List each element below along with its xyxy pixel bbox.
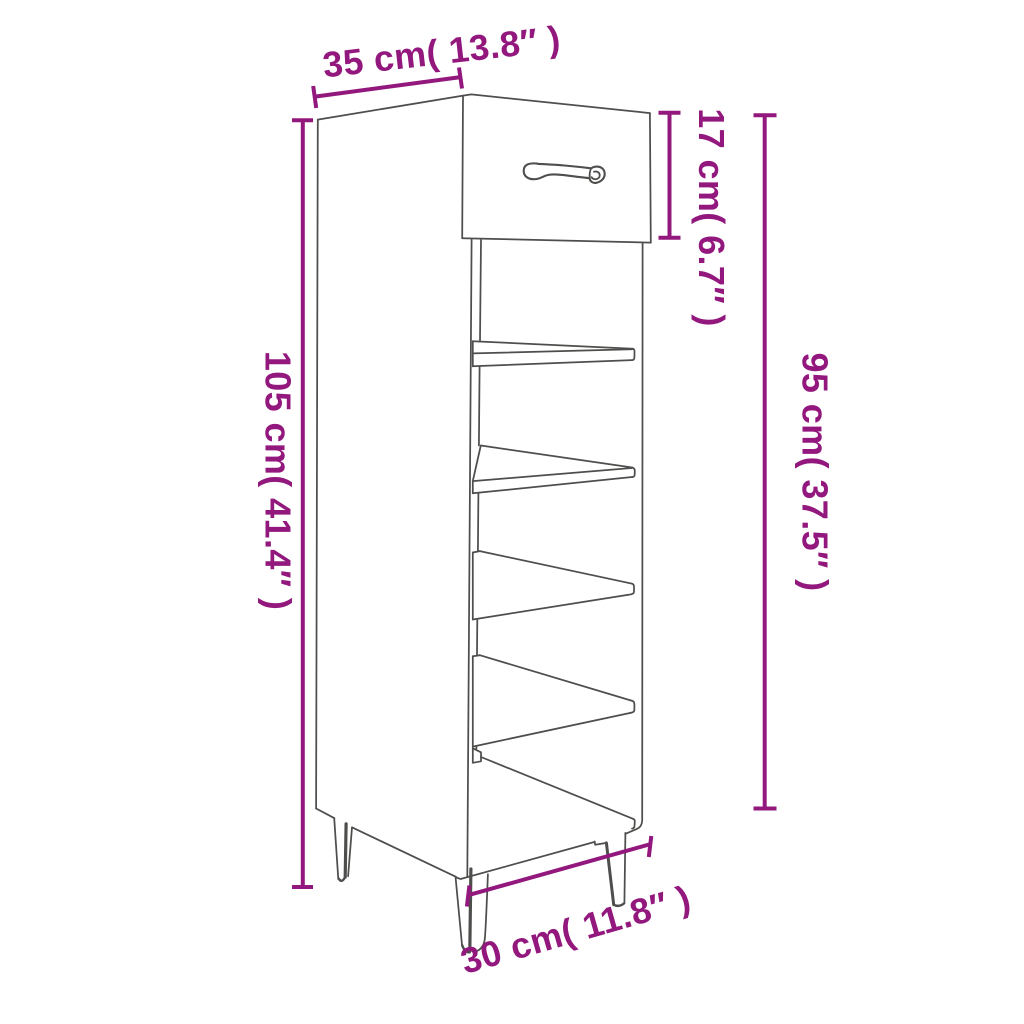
svg-text:105 cm( 41.4″ ): 105 cm( 41.4″ ) <box>258 351 299 610</box>
svg-text:95 cm( 37.5″ ): 95 cm( 37.5″ ) <box>795 353 836 592</box>
svg-text:17 cm( 6.7″ ): 17 cm( 6.7″ ) <box>691 108 732 327</box>
